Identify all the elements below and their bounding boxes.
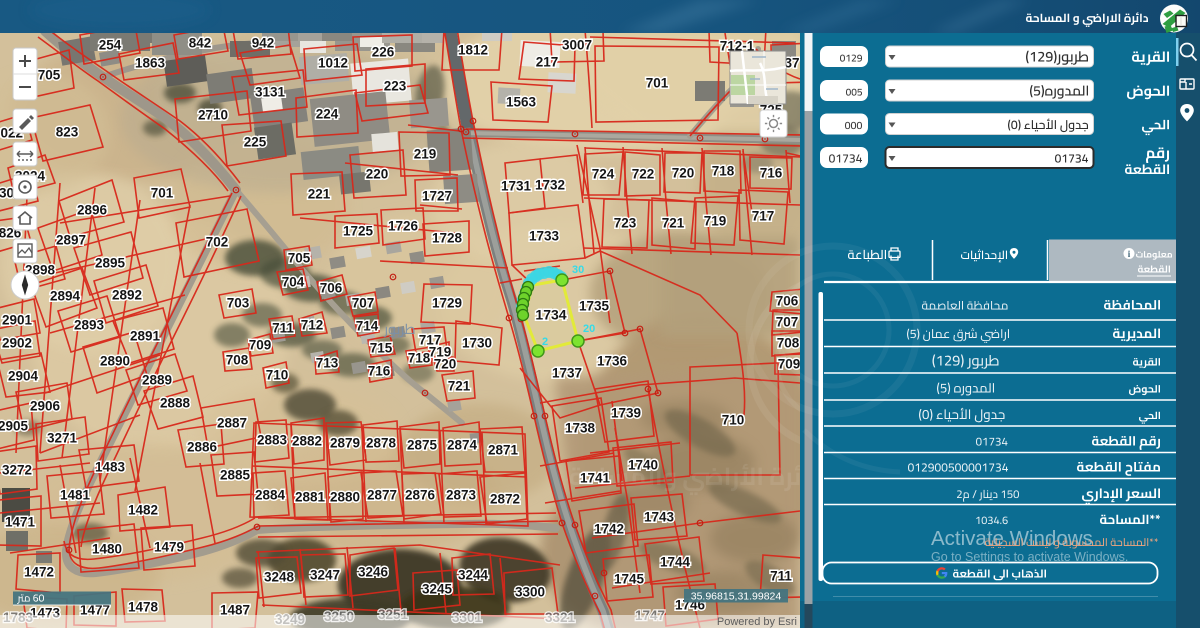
svg-text:Activate Windows: Activate Windows — [931, 527, 1093, 550]
svg-text:724: 724 — [592, 167, 615, 182]
svg-text:226: 226 — [372, 45, 395, 60]
svg-text:721: 721 — [662, 216, 685, 231]
svg-text:2906: 2906 — [30, 399, 61, 414]
svg-text:2710: 2710 — [198, 108, 228, 123]
svg-text:2881: 2881 — [295, 490, 326, 505]
svg-text:2877: 2877 — [367, 488, 397, 503]
svg-text:2888: 2888 — [160, 396, 191, 411]
svg-text:221: 221 — [308, 187, 331, 202]
svg-text:1480: 1480 — [92, 542, 122, 557]
svg-text:704: 704 — [282, 275, 305, 290]
svg-text:2891: 2891 — [130, 329, 161, 344]
svg-text:717: 717 — [752, 209, 775, 224]
svg-text:37: 37 — [784, 56, 799, 71]
svg-text:1728: 1728 — [432, 231, 463, 246]
svg-text:219: 219 — [414, 147, 437, 162]
svg-text:702: 702 — [206, 235, 229, 250]
svg-text:1012: 1012 — [318, 56, 348, 71]
svg-text:3248: 3248 — [264, 570, 295, 585]
svg-text:1735: 1735 — [579, 299, 610, 314]
svg-text:701: 701 — [646, 76, 669, 91]
svg-text:706: 706 — [320, 281, 343, 296]
svg-text:718: 718 — [408, 351, 431, 366]
svg-text:1726: 1726 — [388, 219, 419, 234]
svg-text:2873: 2873 — [446, 488, 477, 503]
svg-text:1731: 1731 — [501, 179, 532, 194]
svg-text:3244: 3244 — [458, 568, 489, 583]
svg-text:2897: 2897 — [56, 233, 86, 248]
svg-text:2874: 2874 — [447, 438, 478, 453]
svg-text:716: 716 — [368, 364, 391, 379]
svg-text:1739: 1739 — [611, 406, 641, 421]
svg-text:942: 942 — [252, 36, 275, 51]
svg-text:2893: 2893 — [74, 318, 105, 333]
svg-text:705: 705 — [288, 251, 311, 266]
svg-text:1742: 1742 — [594, 522, 624, 537]
svg-text:2875: 2875 — [407, 438, 438, 453]
svg-text:2871: 2871 — [488, 443, 519, 458]
svg-text:1736: 1736 — [597, 354, 628, 369]
svg-text:2884: 2884 — [255, 488, 286, 503]
svg-text:823: 823 — [56, 125, 79, 140]
svg-text:2879: 2879 — [330, 436, 360, 451]
svg-text:1478: 1478 — [128, 600, 159, 615]
svg-text:717: 717 — [419, 333, 442, 348]
svg-text:709: 709 — [249, 338, 272, 353]
svg-text:703: 703 — [227, 296, 250, 311]
svg-text:2: 2 — [542, 336, 548, 348]
svg-text:3131: 3131 — [255, 85, 286, 100]
svg-text:35.96815,31.99824: 35.96815,31.99824 — [691, 591, 782, 603]
svg-text:723: 723 — [614, 216, 637, 231]
svg-text:708: 708 — [226, 353, 249, 368]
svg-text:1737: 1737 — [552, 366, 582, 381]
svg-text:711: 711 — [272, 321, 294, 336]
svg-text:2904: 2904 — [8, 369, 39, 384]
svg-text:2880: 2880 — [330, 490, 360, 505]
svg-text:1472: 1472 — [24, 565, 54, 580]
svg-text:707: 707 — [352, 296, 375, 311]
svg-text:2890: 2890 — [100, 354, 130, 369]
svg-text:1744: 1744 — [660, 555, 691, 570]
svg-text:2895: 2895 — [95, 256, 126, 271]
svg-text:1481: 1481 — [60, 488, 91, 503]
svg-text:1863: 1863 — [135, 56, 166, 71]
svg-text:1732: 1732 — [535, 178, 565, 193]
svg-text:3246: 3246 — [358, 565, 389, 580]
svg-text:2887: 2887 — [217, 416, 247, 431]
svg-text:2882: 2882 — [292, 434, 322, 449]
svg-text:719: 719 — [704, 214, 727, 229]
svg-text:1741: 1741 — [580, 471, 611, 486]
svg-text:1483: 1483 — [95, 460, 126, 475]
svg-text:721: 721 — [448, 379, 471, 394]
svg-text:1730: 1730 — [462, 336, 492, 351]
svg-text:705: 705 — [38, 68, 61, 83]
svg-text:2901: 2901 — [2, 313, 33, 328]
svg-text:2885: 2885 — [220, 468, 251, 483]
svg-text:2878: 2878 — [366, 436, 397, 451]
svg-text:1740: 1740 — [628, 458, 658, 473]
svg-text:1471: 1471 — [5, 515, 36, 530]
svg-text:224: 224 — [316, 107, 339, 122]
svg-text:2889: 2889 — [142, 373, 172, 388]
svg-text:718: 718 — [712, 164, 735, 179]
svg-text:30: 30 — [572, 264, 584, 276]
svg-text:716: 716 — [760, 166, 783, 181]
svg-text:711: 711 — [770, 569, 792, 584]
svg-text:701: 701 — [151, 186, 174, 201]
svg-text:1733: 1733 — [529, 229, 560, 244]
svg-text:2905: 2905 — [0, 419, 29, 434]
svg-text:710: 710 — [722, 413, 745, 428]
svg-text:1727: 1727 — [422, 189, 452, 204]
svg-text:1743: 1743 — [644, 510, 675, 525]
svg-text:3245: 3245 — [422, 582, 453, 597]
svg-text:223: 223 — [384, 79, 407, 94]
svg-text:2876: 2876 — [405, 488, 436, 503]
svg-text:713: 713 — [316, 356, 339, 371]
svg-text:1812: 1812 — [458, 43, 488, 58]
svg-text:2902: 2902 — [2, 336, 32, 351]
svg-text:225: 225 — [244, 135, 267, 150]
svg-text:20: 20 — [583, 323, 595, 335]
svg-text:3300: 3300 — [515, 585, 545, 600]
svg-text:720: 720 — [672, 166, 695, 181]
svg-text:3247: 3247 — [310, 568, 340, 583]
svg-text:842: 842 — [189, 36, 212, 51]
svg-text:1563: 1563 — [506, 95, 537, 110]
svg-text:220: 220 — [366, 167, 389, 182]
svg-text:714: 714 — [356, 319, 379, 334]
svg-text:3007: 3007 — [562, 38, 592, 53]
svg-text:715: 715 — [370, 341, 393, 356]
svg-text:1738: 1738 — [565, 421, 596, 436]
svg-text:217: 217 — [536, 55, 559, 70]
svg-text:1745: 1745 — [614, 572, 645, 587]
svg-text:722: 722 — [632, 167, 655, 182]
svg-text:2872: 2872 — [490, 492, 520, 507]
svg-text:1479: 1479 — [154, 540, 184, 555]
svg-text:2894: 2894 — [50, 289, 81, 304]
svg-text:1729: 1729 — [432, 296, 462, 311]
svg-text:2886: 2886 — [187, 440, 218, 455]
svg-text:712: 712 — [301, 318, 324, 333]
svg-text:3271: 3271 — [47, 431, 78, 446]
svg-text:710: 710 — [266, 368, 289, 383]
svg-text:3272: 3272 — [2, 463, 32, 478]
svg-text:254: 254 — [99, 38, 122, 53]
svg-text:1725: 1725 — [343, 224, 374, 239]
svg-text:2896: 2896 — [77, 203, 108, 218]
svg-text:1734: 1734 — [535, 307, 566, 323]
svg-text:1482: 1482 — [128, 503, 158, 518]
svg-text:2892: 2892 — [112, 288, 142, 303]
svg-text:Powered by Esri: Powered by Esri — [717, 616, 797, 628]
svg-text:2883: 2883 — [257, 433, 288, 448]
